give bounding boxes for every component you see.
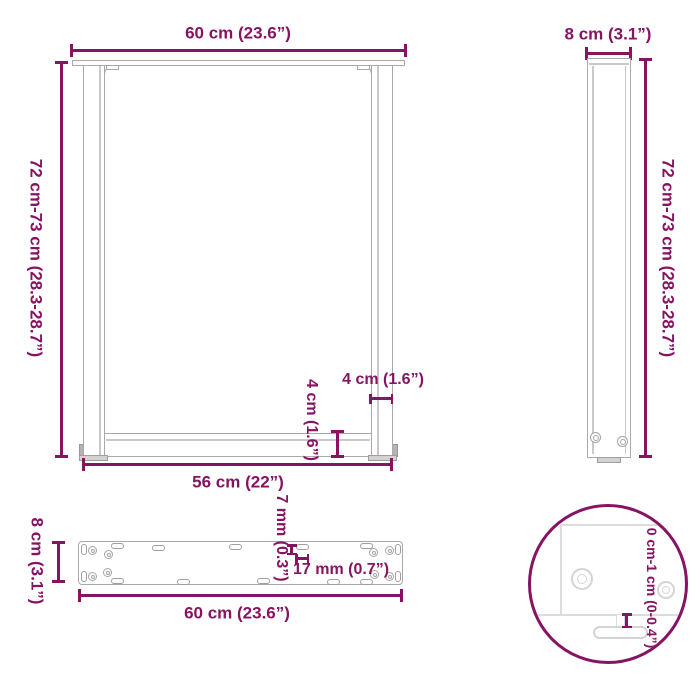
plate-slot <box>177 579 190 585</box>
plate-length-label: 60 cm (23.6”) <box>184 605 290 622</box>
plate-screw-hole <box>369 548 378 557</box>
plate-depth-label: 8 cm (3.1”) <box>29 518 46 605</box>
plate-slot <box>395 544 401 555</box>
crossbar <box>104 433 372 457</box>
front-height-label: 72 cm-73 cm (28.3-28.7”) <box>28 159 45 357</box>
detail-foot-pad <box>593 626 648 639</box>
front-inner-width-label: 56 cm (22”) <box>192 474 284 491</box>
front-inner-width-dimension-line <box>82 463 393 466</box>
plate-slot <box>111 578 124 584</box>
plate-slot <box>296 544 309 550</box>
leg-width-label: 4 cm (1.6”) <box>342 372 424 388</box>
side-right-edge-line <box>625 66 627 454</box>
plate-slot <box>81 544 87 555</box>
adjustment-dimension-line <box>625 613 628 628</box>
front-width-label: 60 cm (23.6”) <box>185 25 291 42</box>
side-screw-right <box>617 436 628 447</box>
side-depth-dimension-line <box>585 52 632 55</box>
side-foot-pad <box>597 457 621 463</box>
side-depth-label: 8 cm (3.1”) <box>565 26 652 43</box>
left-leg-edge-line <box>99 66 101 455</box>
front-width-dimension-line <box>70 49 407 52</box>
leg-width-dimension-line <box>369 397 393 400</box>
plate-screw-hole <box>103 568 112 577</box>
plate-screw-hole <box>88 546 97 555</box>
detail-leg-top-line <box>560 524 677 526</box>
side-height-label: 72 cm-73 cm (28.3-28.7”) <box>660 159 677 357</box>
hole-length-label: 17 mm (0.7”) <box>293 562 389 578</box>
hole-length-dimension-line <box>295 557 309 560</box>
left-leg <box>83 63 105 457</box>
hole-width-label: 7 mm (0.3”) <box>273 494 289 581</box>
dimension-diagram: 60 cm (23.6”) 72 cm-73 cm (28.3-28.7”) 5… <box>0 0 700 700</box>
top-plate <box>72 60 405 66</box>
crossbar-height-dimension-line <box>336 430 339 458</box>
plate-slot <box>327 579 340 585</box>
hole-width-dimension-line <box>290 544 293 555</box>
crossbar-height-label: 4 cm (1.6”) <box>303 379 319 461</box>
crossbar-edge-line <box>106 439 370 441</box>
plate-slot <box>152 545 165 551</box>
side-screw-left <box>590 432 601 443</box>
side-height-dimension-line <box>644 58 647 458</box>
detail-leg-side-line <box>560 524 562 615</box>
plate-depth-dimension-line <box>57 541 60 583</box>
plate-slot <box>229 544 242 550</box>
plate-screw-hole <box>88 572 97 581</box>
plate-screw-hole <box>104 550 113 559</box>
side-left-edge-line <box>592 66 594 454</box>
side-plate-edge-line <box>589 63 629 65</box>
plate-slot <box>395 571 401 582</box>
inner-opening <box>104 63 372 435</box>
plate-slot <box>360 579 373 585</box>
detail-view-circle: 0 cm-1 cm (0-0.4”) <box>528 504 688 664</box>
plate-slot <box>111 543 124 549</box>
detail-screw-inner <box>662 586 670 594</box>
plate-length-dimension-line <box>78 594 403 597</box>
plate-slot <box>257 578 270 584</box>
front-height-dimension-line <box>60 61 63 458</box>
plate-slot <box>360 543 373 549</box>
detail-screw-inner <box>577 574 587 584</box>
plate-slot <box>81 571 87 582</box>
adjustment-range-label: 0 cm-1 cm (0-0.4”) <box>645 528 659 649</box>
plate-screw-hole <box>385 546 394 555</box>
